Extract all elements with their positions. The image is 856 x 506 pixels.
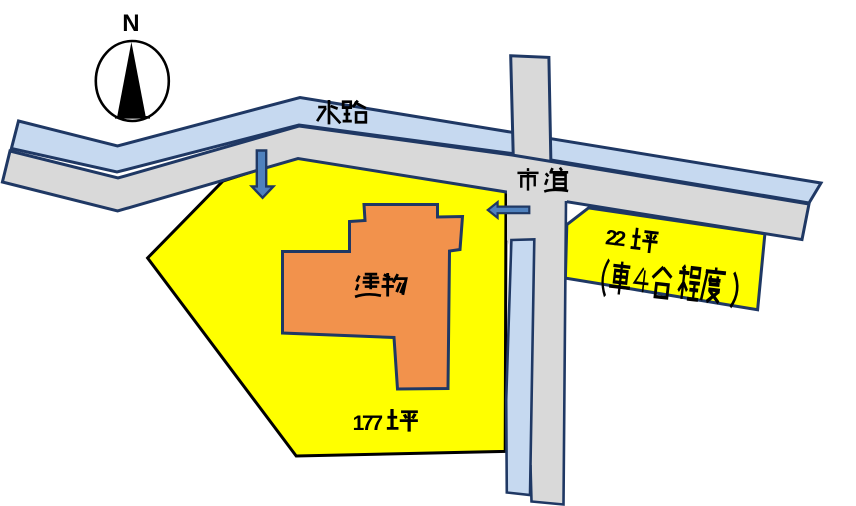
- svg-text:177: 177: [353, 412, 384, 435]
- svg-text:22: 22: [604, 226, 627, 251]
- svg-text:N: N: [122, 10, 139, 37]
